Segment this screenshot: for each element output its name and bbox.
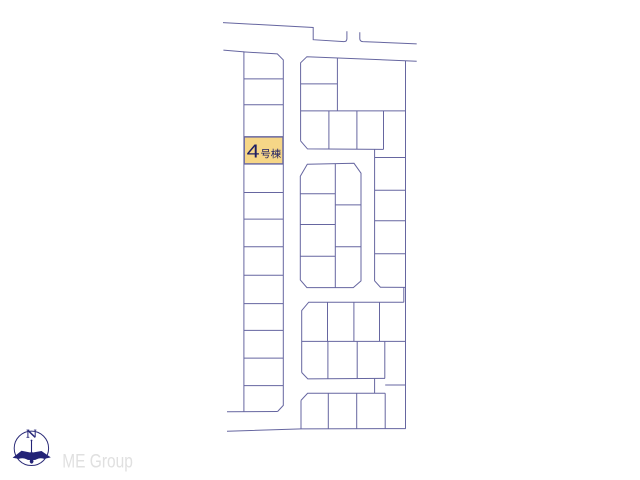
svg-text:号棟: 号棟 — [260, 147, 281, 160]
svg-text:ME Group: ME Group — [62, 452, 133, 473]
svg-text:4: 4 — [247, 140, 260, 161]
